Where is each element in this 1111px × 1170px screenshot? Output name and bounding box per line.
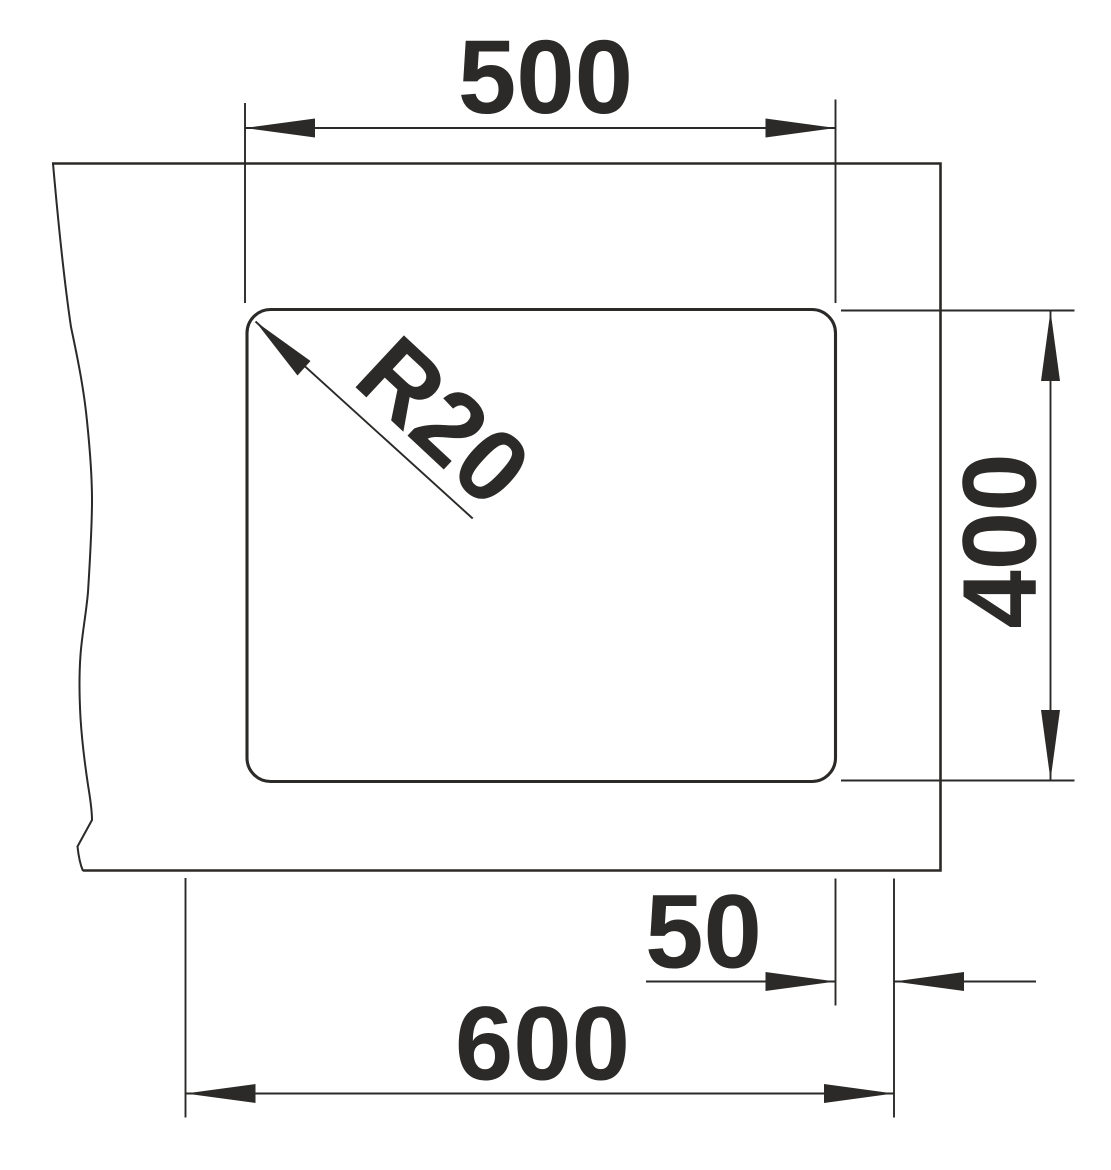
svg-text:R20: R20 — [336, 314, 553, 527]
svg-text:600: 600 — [455, 986, 630, 1103]
svg-text:50: 50 — [645, 874, 762, 991]
svg-text:500: 500 — [458, 19, 633, 136]
svg-text:400: 400 — [942, 453, 1059, 628]
